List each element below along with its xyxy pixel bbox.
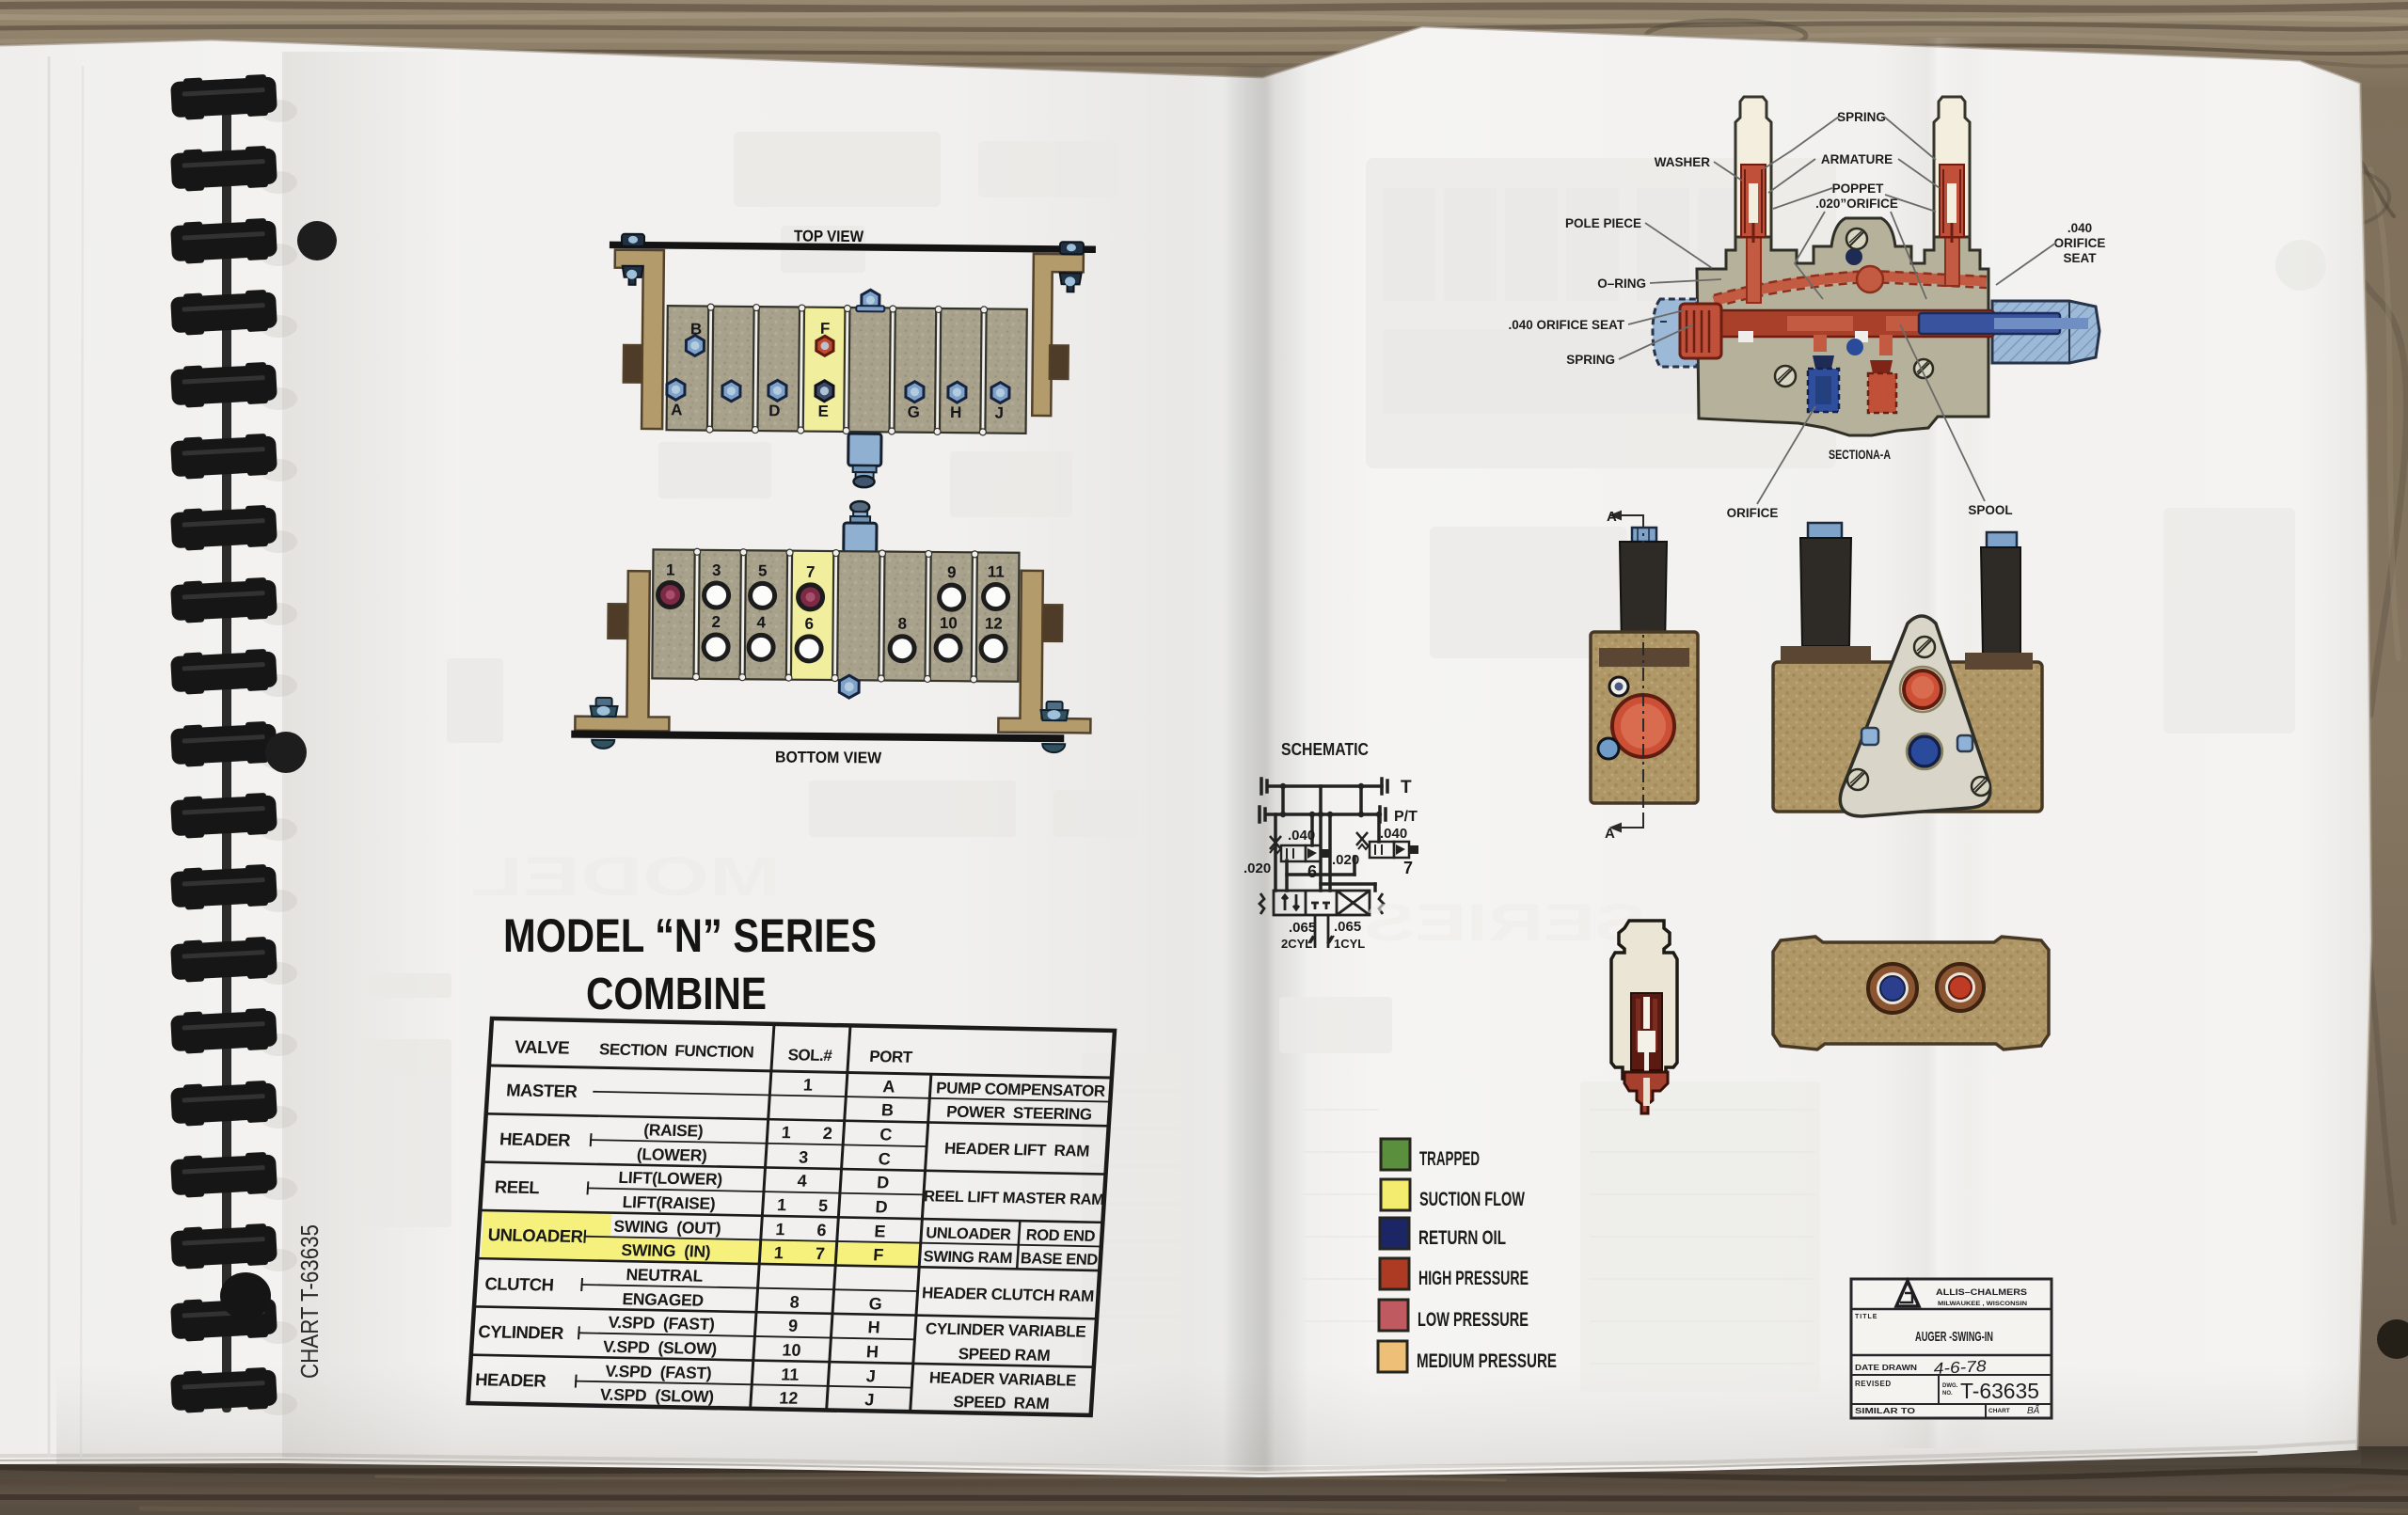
svg-text:ORIFICE: ORIFICE [2054,236,2106,250]
svg-text:CHART T-63635: CHART T-63635 [295,1224,324,1379]
svg-text:1: 1 [802,1076,813,1095]
svg-text:HEADER VARIABLE: HEADER VARIABLE [928,1369,1076,1390]
svg-text:D: D [877,1173,890,1191]
svg-text:C: C [879,1125,893,1144]
svg-text:POPPET: POPPET [1832,181,1885,196]
svg-text:UNLOADER: UNLOADER [926,1224,1012,1243]
svg-text:E: E [874,1222,886,1240]
svg-text:.040 ORIFICE SEAT: .040 ORIFICE SEAT [1508,318,1624,332]
svg-text:F: F [873,1245,884,1264]
svg-text:11: 11 [781,1365,800,1383]
svg-text:BǞ: BǞ [2027,1404,2040,1416]
svg-text:SIMILAR TO: SIMILAR TO [1855,1407,1915,1415]
svg-text:V.SPD (FAST): V.SPD (FAST) [608,1313,715,1334]
svg-text:ROD END: ROD END [1025,1226,1096,1244]
svg-text:V.SPD (SLOW): V.SPD (SLOW) [603,1337,718,1358]
svg-text:H: H [950,403,961,421]
svg-text:9: 9 [788,1317,799,1335]
svg-text:A: A [1607,509,1617,525]
svg-text:C: C [878,1149,891,1168]
svg-text:12: 12 [779,1388,799,1407]
svg-text:3: 3 [712,561,721,579]
svg-text:.040: .040 [2067,221,2092,235]
svg-text:WASHER: WASHER [1655,155,1711,169]
svg-text:2CYL: 2CYL [1281,937,1312,951]
svg-text:(LOWER): (LOWER) [636,1144,707,1164]
svg-text:ENGAGED: ENGAGED [622,1289,705,1310]
svg-text:1CYL: 1CYL [1334,937,1365,951]
svg-text:D: D [768,402,780,419]
svg-text:POWER STEERING: POWER STEERING [946,1103,1093,1124]
svg-text:HEADER CLUTCH RAM: HEADER CLUTCH RAM [921,1284,1094,1305]
svg-text:HEADER: HEADER [475,1369,547,1390]
svg-text:CLUTCH: CLUTCH [484,1273,554,1294]
svg-text:1: 1 [776,1195,786,1214]
svg-text:.040: .040 [1288,828,1315,844]
svg-text:SPRING: SPRING [1566,353,1615,367]
svg-text:UNLOADER: UNLOADER [487,1224,583,1246]
svg-text:DATE DRAWN: DATE DRAWN [1855,1364,1917,1372]
svg-text:P/T: P/T [1394,809,1418,825]
svg-text:V.SPD (FAST): V.SPD (FAST) [605,1362,712,1382]
svg-text:10: 10 [940,614,958,632]
svg-text:MEDIUM PRESSURE: MEDIUM PRESSURE [1417,1350,1557,1372]
svg-text:VALVE: VALVE [514,1038,569,1059]
svg-text:4: 4 [757,613,767,631]
svg-text:LOW PRESSURE: LOW PRESSURE [1418,1309,1529,1331]
svg-text:3: 3 [799,1148,809,1167]
svg-text:H: H [865,1342,879,1361]
svg-text:PUMP COMPENSATOR: PUMP COMPENSATOR [936,1079,1106,1100]
svg-text:TITLE: TITLE [1855,1314,1877,1320]
svg-text:DWG.: DWG. [1942,1383,1958,1389]
svg-text:6: 6 [805,615,815,633]
svg-text:8: 8 [789,1293,800,1312]
svg-text:CYLINDER VARIABLE: CYLINDER VARIABLE [925,1319,1085,1340]
svg-text:.020”ORIFICE: .020”ORIFICE [1815,197,1898,211]
svg-text:LIFT(LOWER): LIFT(LOWER) [618,1168,723,1189]
svg-text:G: G [908,403,920,421]
svg-text:7: 7 [1403,859,1413,877]
svg-text:SOL.#: SOL.# [787,1046,833,1065]
svg-text:J: J [994,404,1004,422]
svg-text:SWING RAM: SWING RAM [923,1248,1012,1267]
svg-text:SUCTION FLOW: SUCTION FLOW [1419,1189,1525,1210]
svg-text:J: J [864,1390,875,1409]
svg-text:MODEL: MODEL [470,846,781,907]
svg-text:T: T [1401,778,1412,797]
svg-text:SPOOL: SPOOL [1968,503,2012,517]
svg-text:NEUTRAL: NEUTRAL [626,1265,704,1286]
svg-text:6: 6 [1307,862,1317,881]
svg-text:REEL: REEL [494,1176,540,1197]
svg-text:A: A [882,1077,895,1096]
svg-text:SCHEMATIC: SCHEMATIC [1281,740,1369,759]
svg-text:1: 1 [775,1220,785,1239]
svg-text:7: 7 [815,1244,825,1263]
svg-text:POLE PIECE: POLE PIECE [1565,216,1641,230]
svg-text:SECTIONA-A: SECTIONA-A [1829,447,1891,462]
svg-text:COMBINE: COMBINE [586,970,767,1019]
svg-text:7: 7 [806,563,816,581]
svg-text:CHART: CHART [1988,1408,2010,1414]
svg-text:.065: .065 [1289,920,1316,936]
svg-text:AUGER -SWING-IN: AUGER -SWING-IN [1915,1329,1993,1345]
svg-text:10: 10 [782,1340,801,1359]
svg-text:HIGH PRESSURE: HIGH PRESSURE [1418,1268,1529,1289]
svg-text:MODEL “N” SERIES: MODEL “N” SERIES [503,909,877,962]
svg-text:O–RING: O–RING [1597,276,1646,291]
svg-text:4-6-78: 4-6-78 [1933,1357,1988,1378]
svg-text:.065: .065 [1334,919,1361,935]
svg-text:LIFT(RAISE): LIFT(RAISE) [622,1192,716,1213]
svg-text:A: A [671,401,682,418]
svg-text:REVISED: REVISED [1855,1380,1892,1388]
svg-text:.040: .040 [1380,826,1407,842]
svg-text:D: D [875,1197,888,1216]
svg-text:J: J [865,1366,876,1385]
svg-text:1: 1 [773,1243,784,1262]
svg-text:BASE END: BASE END [1020,1250,1099,1269]
svg-text:SPRING: SPRING [1837,110,1886,124]
svg-text:G: G [868,1294,882,1313]
svg-text:TOP VIEW: TOP VIEW [794,227,864,245]
svg-text:BOTTOM VIEW: BOTTOM VIEW [775,749,882,767]
svg-text:ARMATURE: ARMATURE [1821,152,1893,166]
svg-text:B: B [880,1100,894,1119]
svg-text:ORIFICE: ORIFICE [1727,506,1779,520]
svg-text:V.SPD (SLOW): V.SPD (SLOW) [599,1385,714,1406]
svg-text:CYLINDER: CYLINDER [478,1321,564,1343]
svg-text:HEADER: HEADER [499,1128,570,1149]
svg-text:MASTER: MASTER [506,1080,578,1100]
svg-text:MILWAUKEE , WISCONSIN: MILWAUKEE , WISCONSIN [1938,1302,2027,1307]
svg-text:12: 12 [985,614,1003,632]
svg-text:NO.: NO. [1942,1391,1953,1397]
svg-text:SERIES: SERIES [1364,892,1646,952]
svg-text:HEADER LIFT RAM: HEADER LIFT RAM [943,1140,1089,1160]
svg-text:2: 2 [822,1124,832,1143]
svg-text:SWING (IN): SWING (IN) [621,1240,711,1261]
svg-text:PORT: PORT [869,1048,913,1066]
svg-text:1: 1 [666,560,675,578]
svg-text:8: 8 [898,615,908,633]
svg-text:A: A [1605,826,1615,842]
svg-text:5: 5 [758,561,768,579]
svg-text:6: 6 [816,1221,827,1239]
svg-text:11: 11 [988,562,1005,580]
svg-text:.020: .020 [1332,852,1359,868]
svg-text:SPEED RAM: SPEED RAM [953,1393,1050,1412]
svg-text:(RAISE): (RAISE) [643,1120,704,1140]
svg-text:4: 4 [797,1172,807,1191]
svg-text:REEL LIFT MASTER RAM: REEL LIFT MASTER RAM [924,1188,1104,1208]
svg-text:H: H [867,1318,880,1336]
svg-text:SECTION FUNCTION: SECTION FUNCTION [599,1040,755,1061]
svg-text:TRAPPED: TRAPPED [1419,1148,1480,1170]
svg-text:E: E [817,402,829,420]
svg-text:.020: .020 [1244,860,1271,876]
svg-text:T-63635: T-63635 [1960,1379,2039,1403]
svg-text:9: 9 [947,563,957,581]
svg-text:SWING (OUT): SWING (OUT) [613,1217,721,1238]
svg-text:5: 5 [817,1196,828,1215]
svg-text:1: 1 [781,1123,791,1142]
svg-text:SEAT: SEAT [2063,251,2097,265]
svg-text:SPEED RAM: SPEED RAM [958,1345,1051,1365]
svg-text:ALLIS–CHALMERS: ALLIS–CHALMERS [1936,1287,2027,1298]
svg-text:RETURN OIL: RETURN OIL [1418,1227,1506,1249]
svg-text:2: 2 [712,613,721,631]
